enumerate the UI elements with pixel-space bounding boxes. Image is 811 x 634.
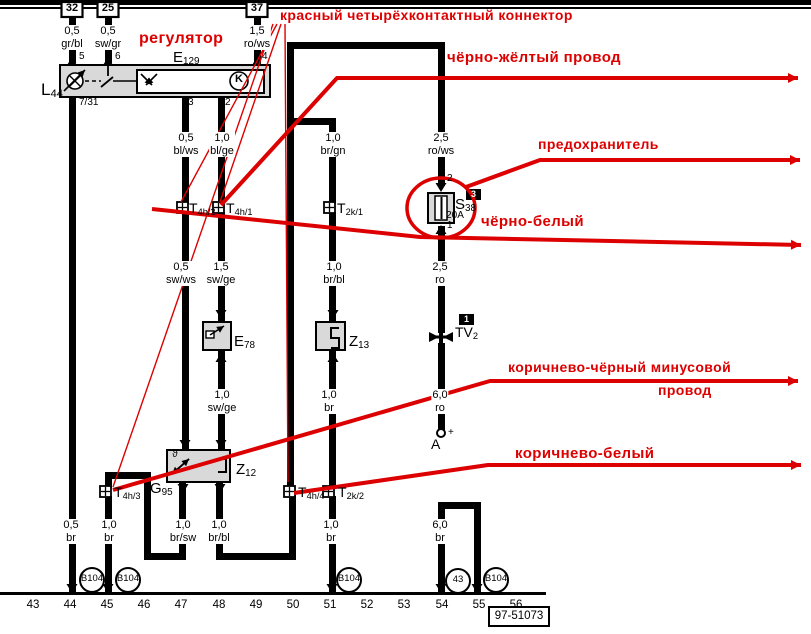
wire-label-text: br/bl xyxy=(323,274,344,286)
annotation-text: предохранитель xyxy=(538,137,659,152)
wire-label-text: 2,5 xyxy=(433,132,448,144)
component-label-text: 12 xyxy=(245,468,256,479)
wire-label-text: 1,0 xyxy=(101,519,116,531)
wire-label-text: sw/ge xyxy=(207,274,236,286)
pin-label-text: + xyxy=(448,427,454,438)
current-track-number: 56 xyxy=(510,599,523,611)
wire-label: 1,0br/bl xyxy=(207,519,230,544)
annotation-text: коричнево-чёрный минусовой xyxy=(508,360,731,375)
component-label: Z13 xyxy=(349,334,369,352)
annotation-text: красный четырёхконтактный коннектор xyxy=(280,8,573,23)
connector-label-text: 4h/2 xyxy=(198,207,216,217)
annotation-text: коричнево-белый xyxy=(515,446,654,462)
wire-label: 1,5sw/ge xyxy=(206,261,237,286)
annotation-text-text: предохранитель xyxy=(538,136,659,152)
component-label: E129 xyxy=(173,50,200,68)
component-label-text: 129 xyxy=(183,56,199,67)
wire-label: 1,0br xyxy=(100,519,117,544)
component-label-text: E xyxy=(234,333,244,350)
connector-label: T2k/1 xyxy=(337,201,363,218)
wire-label-text: 2,5 xyxy=(432,261,447,273)
wire-label-text: 0,5 xyxy=(64,25,79,37)
annotation-text: чёрно-жёлтый провод xyxy=(447,50,621,66)
wire-label: 0,5sw/ws xyxy=(165,261,197,286)
ground-label-text: 43 xyxy=(453,574,464,585)
connector-label-text: T xyxy=(337,200,346,216)
current-track-number: 49 xyxy=(250,599,263,611)
wire-label-text: ro/ws xyxy=(244,38,270,50)
current-track-number-text: 56 xyxy=(510,599,523,611)
pin-label-text: 5 xyxy=(79,51,85,62)
pin-label-text: 4 xyxy=(262,51,268,62)
current-track-number-text: 47 xyxy=(175,599,188,611)
component-label-text: 44 xyxy=(50,88,62,100)
component-label-text: 38 xyxy=(465,203,476,214)
ground-label: B104 xyxy=(338,574,360,584)
connector-label-text: 4h/1 xyxy=(235,207,253,217)
current-track-number: 44 xyxy=(64,599,77,611)
wire-label: 1,0br/sw xyxy=(169,519,197,544)
wire-label-text: br xyxy=(66,532,76,544)
component-label-text: Z xyxy=(236,461,245,478)
pin-label: 4 xyxy=(262,52,268,63)
wire-label: 1,0br xyxy=(322,519,339,544)
wire-label-text: br xyxy=(104,532,114,544)
connector-label: T2k/2 xyxy=(338,485,364,502)
current-track-number: 53 xyxy=(398,599,411,611)
connector-label-text: T xyxy=(298,484,307,500)
current-track-number: 45 xyxy=(101,599,114,611)
current-track-number-text: 46 xyxy=(138,599,151,611)
current-track-number-text: 52 xyxy=(361,599,374,611)
current-track-number: 52 xyxy=(361,599,374,611)
connector-label-text: T xyxy=(226,200,235,216)
ground-label: B104 xyxy=(117,574,139,584)
symbol-glyph-text: ϑ xyxy=(172,449,177,460)
bus-terminal-label-text: 37 xyxy=(251,2,263,14)
ground-label-text: B104 xyxy=(117,573,139,584)
wire-label-text: br/sw xyxy=(170,532,196,544)
current-track-number-text: 44 xyxy=(64,599,77,611)
pin-label: 2 xyxy=(447,174,453,185)
bus-terminal-label-text: 25 xyxy=(102,2,114,14)
current-track-number-text: 48 xyxy=(213,599,226,611)
wire-label-text: br xyxy=(326,532,336,544)
connector-label: T4h/2 xyxy=(189,201,216,218)
annotation-text: регулятор xyxy=(139,30,223,47)
current-track-number: 51 xyxy=(324,599,337,611)
wire-label-text: 0,5 xyxy=(173,261,188,273)
wire-label-text: sw/gr xyxy=(95,38,121,50)
component-label-text: TV xyxy=(455,324,473,340)
component-label-text: 78 xyxy=(244,340,255,351)
component-label: L44 xyxy=(41,81,63,100)
wire-label: 0,5gr/bl xyxy=(60,25,83,50)
annotation-text: провод xyxy=(658,383,712,398)
annotation-text-text: чёрно-жёлтый провод xyxy=(447,49,621,66)
wire-label-text: 1,0 xyxy=(326,261,341,273)
connector-label: T4h/4 xyxy=(298,485,325,502)
component-label: TV2 xyxy=(455,325,478,342)
diagram-labels: 31B104B104B10443B10432253797-510730,5gr/… xyxy=(0,0,811,634)
wire-label-text: 6,0 xyxy=(432,389,447,401)
annotation-text-text: чёрно-белый xyxy=(481,213,584,230)
annotation-text-text: красный четырёхконтактный коннектор xyxy=(280,7,573,23)
wire-label: 1,0br/gn xyxy=(319,132,346,157)
wire-label: 0,5sw/gr xyxy=(94,25,122,50)
connector-label: T4h/1 xyxy=(226,201,253,218)
symbol-glyph: ϑ xyxy=(172,450,177,461)
component-label: A xyxy=(431,437,440,454)
wire-label-text: sw/ws xyxy=(166,274,196,286)
wire-label-text: 0,5 xyxy=(100,25,115,37)
wire-label-text: 1,0 xyxy=(321,389,336,401)
ground-label: B104 xyxy=(81,574,103,584)
pin-label: 2 xyxy=(225,98,231,109)
connector-label-text: 4h/4 xyxy=(307,491,325,501)
annotation-text-text: коричнево-белый xyxy=(515,445,654,462)
wire-label-text: br/gn xyxy=(320,145,345,157)
connector-label-text: 4h/3 xyxy=(123,491,141,501)
pin-label-text: 7/31 xyxy=(79,97,98,108)
wire-label: 6,0ro xyxy=(431,389,448,414)
wire-label-text: 1,0 xyxy=(175,519,190,531)
wire-label: 0,5bl/ws xyxy=(172,132,199,157)
ground-label-text: B104 xyxy=(81,573,103,584)
current-track-number: 55 xyxy=(473,599,486,611)
current-track-number-text: 45 xyxy=(101,599,114,611)
pin-label: + xyxy=(448,428,454,439)
connector-label-text: T xyxy=(114,484,123,500)
connector-label-text: T xyxy=(338,484,347,500)
symbol-glyph-text: K xyxy=(235,73,243,85)
wire-label-text: ro/ws xyxy=(428,145,454,157)
ground-label-text: B104 xyxy=(485,573,507,584)
current-track-number: 50 xyxy=(287,599,300,611)
bus-terminal-label: 25 xyxy=(102,3,114,15)
annotation-text-text: регулятор xyxy=(139,30,223,47)
wire-label-text: 1,0 xyxy=(214,389,229,401)
wire-label-text: gr/bl xyxy=(61,38,82,50)
pin-label-text: 2 xyxy=(225,97,231,108)
symbol-glyph-text: 20A xyxy=(446,210,464,221)
bus-terminal-label: 32 xyxy=(66,3,78,15)
component-label-text: G xyxy=(150,480,162,497)
component-label-text: E xyxy=(173,49,183,66)
component-label-text: Z xyxy=(349,333,358,350)
ground-label: B104 xyxy=(485,574,507,584)
diagram-ref-number: 97-51073 xyxy=(495,610,544,622)
wire-label-text: ro xyxy=(435,274,445,286)
current-track-number-text: 43 xyxy=(27,599,40,611)
current-track-number-text: 50 xyxy=(287,599,300,611)
component-label: Z12 xyxy=(236,462,256,480)
wire-label-text: br xyxy=(435,532,445,544)
component-label-text: A xyxy=(431,436,440,452)
symbol-glyph: K xyxy=(235,74,243,86)
wire-label: 6,0br xyxy=(431,519,448,544)
pin-label: 1 xyxy=(447,221,453,232)
ground-label: 43 xyxy=(453,575,464,585)
tag-number-text: 1 xyxy=(464,314,469,324)
wire-label: 1,0bl/ge xyxy=(209,132,235,157)
wire-label-text: ro xyxy=(435,402,445,414)
current-track-number-text: 51 xyxy=(324,599,337,611)
bus-terminal-label-text: 32 xyxy=(66,2,78,14)
ground-label-text: B104 xyxy=(338,573,360,584)
component-label: G95 xyxy=(150,481,173,499)
current-track-number-text: 49 xyxy=(250,599,263,611)
wire-label-text: 1,0 xyxy=(211,519,226,531)
wire-label-text: br xyxy=(324,402,334,414)
wire-label: 2,5ro xyxy=(431,261,448,286)
current-track-number: 47 xyxy=(175,599,188,611)
pin-label: 3 xyxy=(188,98,194,109)
wire-label-text: br/bl xyxy=(208,532,229,544)
wire-label-text: 1,5 xyxy=(213,261,228,273)
component-label: E78 xyxy=(234,334,255,352)
wire-label: 1,0sw/ge xyxy=(207,389,238,414)
current-track-number-text: 53 xyxy=(398,599,411,611)
wire-label-text: 0,5 xyxy=(178,132,193,144)
connector-label-text: 2k/1 xyxy=(346,207,363,217)
wire-label-text: 1,0 xyxy=(214,132,229,144)
wiring-diagram: 31B104B104B10443B10432253797-510730,5gr/… xyxy=(0,0,811,634)
pin-label: 6 xyxy=(115,52,121,63)
connector-label-text: 2k/2 xyxy=(347,491,364,501)
connector-label: T4h/3 xyxy=(114,485,141,502)
current-track-number: 54 xyxy=(436,599,449,611)
wire-label-text: sw/ge xyxy=(208,402,237,414)
wire-label-text: 1,0 xyxy=(323,519,338,531)
current-track-number-text: 54 xyxy=(436,599,449,611)
wire-label: 0,5br xyxy=(62,519,79,544)
pin-label-text: 3 xyxy=(188,97,194,108)
connector-label-text: T xyxy=(189,200,198,216)
current-track-number: 48 xyxy=(213,599,226,611)
wire-label-text: 1,5 xyxy=(249,25,264,37)
annotation-text-text: провод xyxy=(658,382,712,398)
wire-label-text: 6,0 xyxy=(432,519,447,531)
current-track-number: 46 xyxy=(138,599,151,611)
wire-label-text: 1,0 xyxy=(325,132,340,144)
symbol-glyph: 20A xyxy=(446,211,464,222)
pin-label: 7/31 xyxy=(79,98,98,109)
wire-label-text: bl/ge xyxy=(210,145,234,157)
annotation-text-text: коричнево-чёрный минусовой xyxy=(508,359,731,375)
wire-label: 1,0br/bl xyxy=(322,261,345,286)
current-track-number-text: 55 xyxy=(473,599,486,611)
wire-label: 1,0br xyxy=(320,389,337,414)
wire-label: 1,5ro/ws xyxy=(243,25,271,50)
wire-label-text: bl/ws xyxy=(173,145,198,157)
component-label-text: 95 xyxy=(162,487,173,498)
bus-terminal-label: 37 xyxy=(251,3,263,15)
wire-label: 2,5ro/ws xyxy=(427,132,455,157)
pin-label: 5 xyxy=(79,52,85,63)
diagram-ref-number-text: 97-51073 xyxy=(495,610,544,622)
pin-label-text: 6 xyxy=(115,51,121,62)
component-label-text: 13 xyxy=(358,340,369,351)
pin-label-text: 2 xyxy=(447,173,453,184)
wire-label-text: 0,5 xyxy=(63,519,78,531)
current-track-number: 43 xyxy=(27,599,40,611)
annotation-text: чёрно-белый xyxy=(481,214,584,230)
component-label-text: 2 xyxy=(473,331,478,341)
